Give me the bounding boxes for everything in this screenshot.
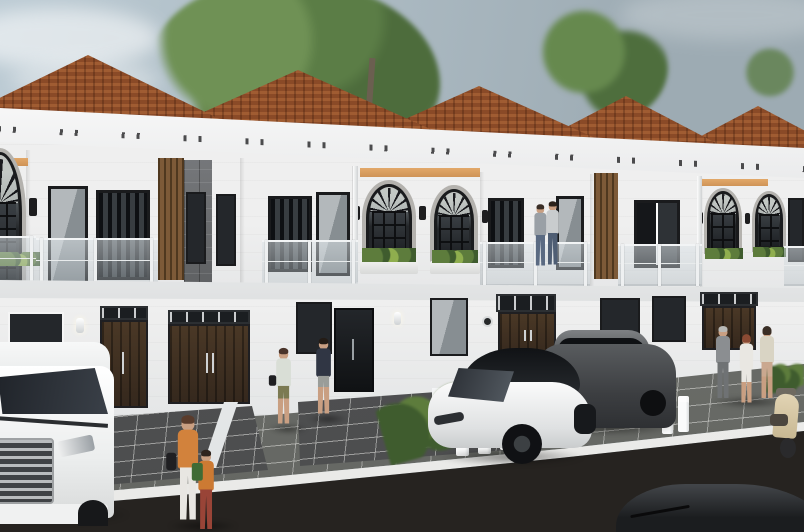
person-hair <box>763 326 772 335</box>
door-transom <box>700 292 758 306</box>
porch-lamp <box>482 316 493 327</box>
person-legs <box>548 233 558 265</box>
window-fan-muntins <box>710 194 736 214</box>
planter-plants <box>432 250 478 263</box>
planter-plants <box>362 248 416 262</box>
person-torso <box>547 210 559 234</box>
window-muntins <box>711 213 735 248</box>
window-muntins <box>759 214 780 246</box>
shoulder-bag <box>166 453 176 470</box>
person-woman-white <box>736 336 757 404</box>
person-hair <box>201 450 211 457</box>
balcony-railing <box>262 240 358 286</box>
door-transom <box>168 310 250 324</box>
person-legs <box>741 368 751 402</box>
suv-rear-wheel <box>640 390 666 416</box>
sedan-windshield <box>448 368 514 402</box>
balcony-post <box>308 240 311 286</box>
person-hair <box>549 201 557 206</box>
person-legs <box>200 489 212 529</box>
balcony-post <box>94 238 97 286</box>
person-torso <box>276 358 291 386</box>
townhouse-render-scene <box>0 0 804 532</box>
glass-entry-door <box>334 308 374 392</box>
person-walking-woman <box>272 350 295 426</box>
window-frame <box>434 189 474 259</box>
scooter-wheel <box>780 438 796 458</box>
van-grille <box>0 438 54 504</box>
person-walking-man <box>312 340 335 416</box>
window-frame <box>366 184 412 258</box>
person-child-backpack <box>194 452 218 531</box>
tote-bag <box>269 375 276 386</box>
planter-box <box>360 260 418 274</box>
balcony-post <box>352 240 355 286</box>
arched-window <box>704 188 742 254</box>
scooter-seat <box>770 414 788 426</box>
person-legs <box>718 362 729 398</box>
arched-window <box>752 191 786 252</box>
porch-lamp <box>76 318 84 333</box>
white-sedan <box>428 348 592 470</box>
window-fan-muntins <box>758 197 781 215</box>
door-transom <box>496 294 556 312</box>
sedan-front-wheel <box>502 424 542 464</box>
door-handle <box>212 353 214 373</box>
green-backpack <box>192 463 203 481</box>
door-handle <box>524 330 526 341</box>
wood-slat-panel <box>594 173 618 279</box>
wall-lamp <box>482 210 488 223</box>
wall-lamp <box>745 213 750 224</box>
narrow-window <box>216 194 236 266</box>
door-handle <box>530 330 532 341</box>
person-torso <box>740 344 753 370</box>
entry-double-door <box>168 324 250 404</box>
person-hair <box>319 338 328 344</box>
person-torso <box>716 336 730 363</box>
sedan-rear-wheel <box>574 404 596 434</box>
balcony-post <box>621 244 624 286</box>
person-torso <box>316 348 331 376</box>
balcony-railing <box>0 236 36 284</box>
van-wheel <box>78 500 108 526</box>
balcony-post <box>696 244 699 286</box>
foreground-car-roof <box>616 484 804 532</box>
beige-scooter <box>766 388 804 460</box>
porch-lamp <box>394 312 401 325</box>
person-on-balcony <box>543 203 562 266</box>
door-handle <box>206 353 208 373</box>
window-fan-muntins <box>438 193 471 216</box>
person-man-suit <box>712 328 734 400</box>
person-torso <box>760 336 774 363</box>
planter-plants <box>705 248 743 259</box>
balcony-post <box>483 242 486 286</box>
balcony-post <box>658 244 661 286</box>
narrow-window <box>186 192 206 264</box>
person-hair <box>279 348 288 354</box>
accent-strip <box>360 168 480 177</box>
person-hair <box>719 326 728 332</box>
wall-lamp <box>29 198 37 216</box>
person-legs <box>278 386 290 424</box>
wood-slat-panel <box>158 158 184 280</box>
person-hair <box>742 334 751 343</box>
planter-plants <box>753 247 786 257</box>
wall-lamp <box>419 206 426 220</box>
balcony-rail <box>784 265 804 266</box>
balcony-post <box>584 242 587 286</box>
window-fan-muntins <box>370 188 408 212</box>
balcony-rail <box>36 260 158 261</box>
balcony-railing <box>784 246 804 286</box>
door-handle <box>352 339 354 360</box>
pilaster-shadow <box>240 158 248 286</box>
tree <box>528 4 668 124</box>
accent-strip <box>700 179 768 186</box>
tree <box>735 30 804 115</box>
window-frame <box>755 194 783 249</box>
person-legs <box>318 376 330 414</box>
balcony-railing <box>36 238 158 286</box>
window-fan-muntins <box>0 159 18 203</box>
door-transom <box>100 306 148 320</box>
balcony-post <box>30 236 33 284</box>
person-hair <box>181 415 194 424</box>
window-frame <box>707 191 739 251</box>
balcony-post <box>265 240 268 286</box>
white-mpv-van <box>0 342 114 528</box>
door-handle <box>122 352 124 374</box>
balcony-post <box>40 238 43 286</box>
balcony-post <box>150 238 153 286</box>
balcony-railing <box>618 244 702 286</box>
